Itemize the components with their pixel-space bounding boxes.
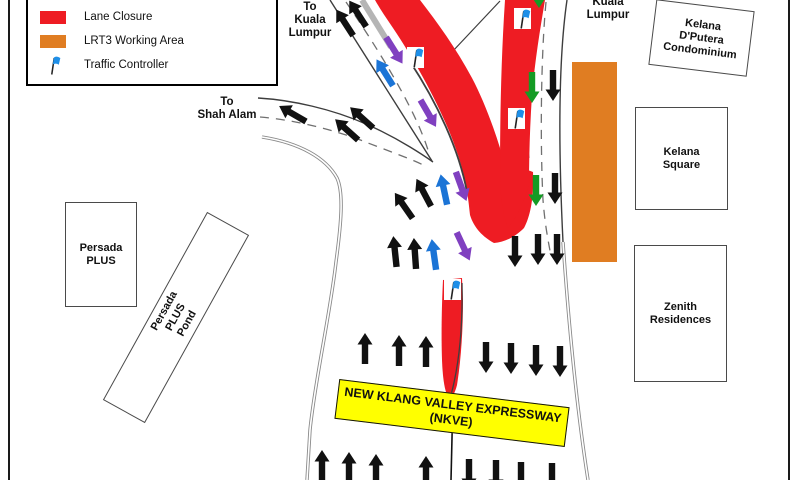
traffic-flow-arrow-black — [529, 345, 544, 376]
traffic-flow-arrow-black — [419, 336, 434, 367]
traffic-flow-arrow-black — [553, 346, 568, 377]
traffic-flow-arrow-black — [315, 450, 330, 480]
traffic-flow-arrow-black — [389, 189, 419, 223]
traffic-flow-arrow-blue — [424, 238, 443, 271]
label-to-shah-alam: To Shah Alam — [182, 96, 272, 122]
traffic-flow-arrow-black — [392, 335, 407, 366]
legend-item-traffic-controller: Traffic Controller — [40, 57, 276, 73]
building-persada-plus: Persada PLUS — [65, 202, 137, 307]
lrt3-working-area — [572, 62, 617, 262]
traffic-flow-arrow-black — [406, 238, 423, 270]
traffic-flow-arrow-blue — [370, 55, 399, 89]
legend-label-lane-closure: Lane Closure — [84, 11, 152, 23]
traffic-flow-arrow-black — [386, 235, 404, 267]
traffic-flow-arrow-blue — [433, 173, 454, 206]
traffic-flow-arrow-black — [514, 462, 529, 480]
traffic-flow-arrow-black — [545, 463, 560, 480]
traffic-flow-arrow-black — [462, 459, 477, 480]
traffic-flow-arrow-black — [369, 454, 384, 480]
lrt3-working-area-swatch — [40, 35, 66, 48]
traffic-controller-flag-icon — [508, 108, 525, 129]
traffic-flow-arrow-black — [504, 343, 519, 374]
traffic-flow-arrow-black — [508, 236, 523, 267]
legend-label-lrt3: LRT3 Working Area — [84, 35, 184, 47]
outer-boundary-right — [563, 242, 588, 480]
gore-line — [452, 1, 500, 52]
traffic-flow-arrow-black — [410, 175, 438, 209]
traffic-flow-arrow-black — [342, 452, 357, 480]
label-to-kuala-lumpur-left: To Kuala Lumpur — [276, 1, 344, 40]
road-edge-right-upper — [560, 0, 567, 242]
page-border-left — [8, 0, 10, 480]
traffic-flow-arrow-black — [479, 342, 494, 373]
traffic-controller-flag-icon — [40, 59, 66, 72]
page-border-right — [788, 0, 790, 480]
traffic-flow-arrow-black — [419, 456, 434, 480]
traffic-controller-flag-icon — [407, 47, 424, 68]
building-kelana-square: Kelana Square — [635, 107, 728, 210]
traffic-flow-arrow-black — [531, 234, 546, 265]
lane-closure-swatch — [40, 11, 66, 24]
traffic-controller-flag-icon — [514, 8, 531, 29]
traffic-controller-flag-icon — [444, 279, 461, 300]
legend-item-lrt3-working-area: LRT3 Working Area — [40, 33, 276, 49]
traffic-flow-arrow-black — [546, 70, 561, 101]
legend-label-traffic-controller: Traffic Controller — [84, 59, 168, 71]
traffic-flow-arrow-black — [489, 460, 504, 480]
building-kelana-dputera-condominium: Kelana D'Putera Condominium — [648, 0, 754, 77]
traffic-flow-arrow-purple — [450, 229, 477, 263]
legend-item-lane-closure: Lane Closure — [40, 9, 276, 25]
label-to-kuala-lumpur-right: Kuala Lumpur — [577, 0, 639, 22]
legend: Lane Closure LRT3 Working Area Traffic C… — [26, 0, 278, 86]
lane-dash-right-road — [541, 2, 551, 256]
building-zenith-residences: Zenith Residences — [634, 245, 727, 382]
outer-boundary-left-inner — [262, 137, 341, 480]
traffic-flow-arrow-black — [358, 333, 373, 364]
traffic-plan-canvas: Kelana D'Putera Condominium Kelana Squar… — [0, 0, 798, 480]
